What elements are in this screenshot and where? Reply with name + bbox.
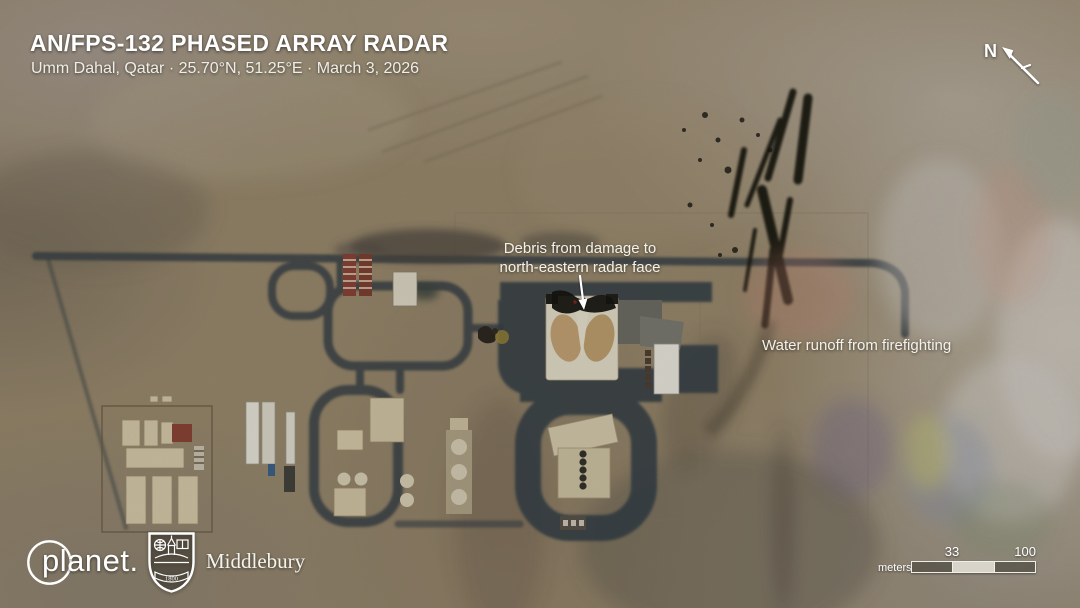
middlebury-shield-icon: 1800 xyxy=(147,531,196,594)
location-date-subtitle: Umm Dahal, Qatar · 25.70°N, 51.25°E · Ma… xyxy=(31,60,419,78)
scale-bar-segment-2 xyxy=(952,562,994,572)
scale-bar-unit-label: meters xyxy=(878,562,909,574)
scale-bar-tick-33: 33 xyxy=(942,544,962,559)
scale-bar-strip xyxy=(911,561,1036,573)
scale-bar-segment-3 xyxy=(995,562,1035,572)
water-runoff-annotation: Water runoff from firefighting xyxy=(762,337,951,354)
middlebury-shield-year: 1800 xyxy=(165,576,178,583)
debris-annotation-line1: Debris from damage to xyxy=(504,240,657,257)
planet-logo-wordmark: planet. xyxy=(42,543,139,579)
film-grain xyxy=(0,0,1080,608)
scale-bar-segment-1 xyxy=(912,562,952,572)
satellite-scene xyxy=(0,0,1080,608)
debris-annotation: Debris from damage to north-eastern rada… xyxy=(455,240,705,278)
page-title: AN/FPS-132 PHASED ARRAY RADAR xyxy=(30,30,448,57)
scale-bar: meters 33 100 xyxy=(878,544,1073,578)
satellite-annotation-graphic: AN/FPS-132 PHASED ARRAY RADAR Umm Dahal,… xyxy=(0,0,1080,608)
debris-pointer-arrow-icon xyxy=(572,274,596,312)
middlebury-wordmark: Middlebury xyxy=(206,549,305,574)
north-arrow-icon xyxy=(996,36,1048,88)
scale-bar-tick-100: 100 xyxy=(1008,544,1036,559)
